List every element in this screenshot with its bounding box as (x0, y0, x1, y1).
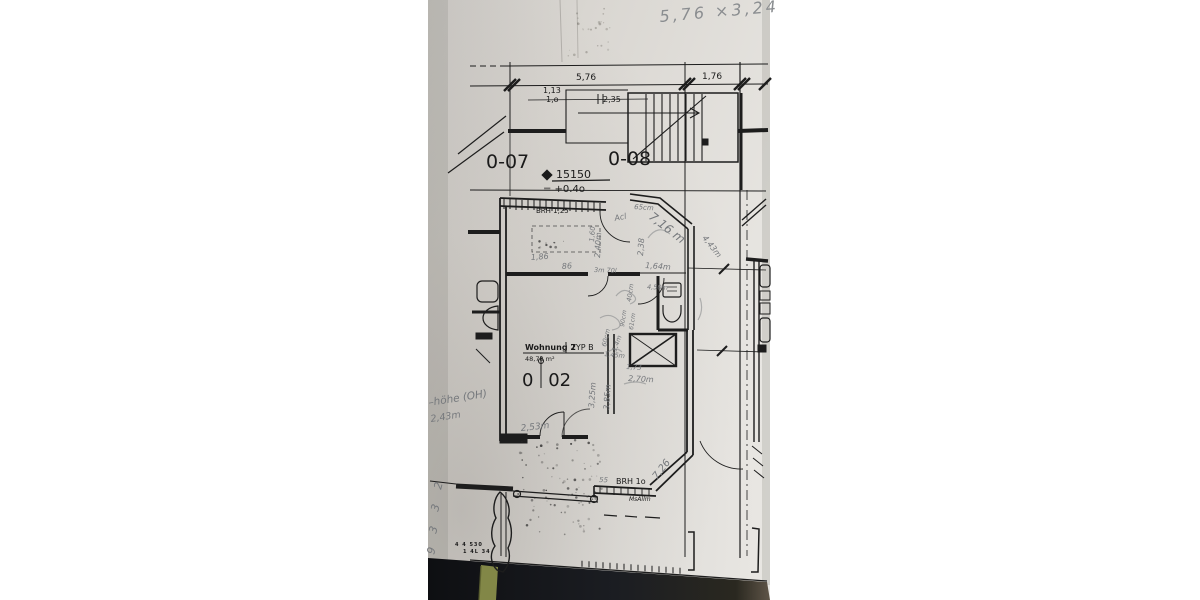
annotation-238: 2,38 (636, 238, 646, 256)
annotation-86: 86 (562, 261, 573, 271)
wall-note-brh1o: BRH 1o (616, 477, 646, 486)
elevation-value: 15150 (556, 168, 591, 181)
annotation-65cm: 65cm (634, 203, 654, 212)
room-number-right: 02 (548, 370, 571, 391)
annotation-160: 1,60 (588, 225, 597, 242)
dim-sub2: 1,o (546, 95, 559, 104)
annotation-55: 55 (599, 476, 609, 484)
screenshot-canvas: 5,76 ×3,24 5,76 1,76 1,13 1,o 2,35 0-07 … (0, 0, 1200, 600)
tiny-print-row2: 1 4L 34 (463, 549, 491, 555)
annotation-186: 1,86 (531, 252, 549, 262)
annotation-385m: 3,85m (602, 384, 613, 410)
wall-note-cursive: MsAllm (629, 496, 651, 503)
tiny-print-row1: 4 4 530 (455, 542, 483, 548)
floorplan-photo: 5,76 ×3,24 5,76 1,76 1,13 1,o 2,35 0-07 … (0, 0, 1200, 600)
annotation-164m: 1,64m (645, 261, 671, 272)
room-label-0-07: 0-07 (486, 151, 529, 173)
annotation-450m: 4,50m (647, 283, 668, 292)
elevation-offset: = +0.4o (543, 184, 585, 195)
room-number-left: 0 (522, 370, 533, 391)
dim-top-right: 1,76 (702, 72, 722, 82)
apartment-area: 48,78 m² (525, 355, 555, 363)
marker-strip (479, 565, 498, 600)
annotation-325m: 3,25m (587, 382, 598, 408)
annotation-173: 1,73 (626, 363, 642, 372)
room-label-0-08: 0-08 (608, 148, 651, 170)
annotation-3m70l: 3m 70l (594, 266, 617, 275)
apartment-name: Wohnung 2 (525, 343, 576, 352)
wall-note-brh125: BRH 1,25 (536, 207, 569, 215)
apartment-type: TYP B (570, 343, 594, 352)
dim-stair: 2,35 (603, 95, 621, 104)
dim-top-main: 5,76 (576, 73, 596, 83)
dim-sub1: 1,13 (543, 86, 561, 95)
annotation-270m: 2,70m (628, 374, 654, 384)
